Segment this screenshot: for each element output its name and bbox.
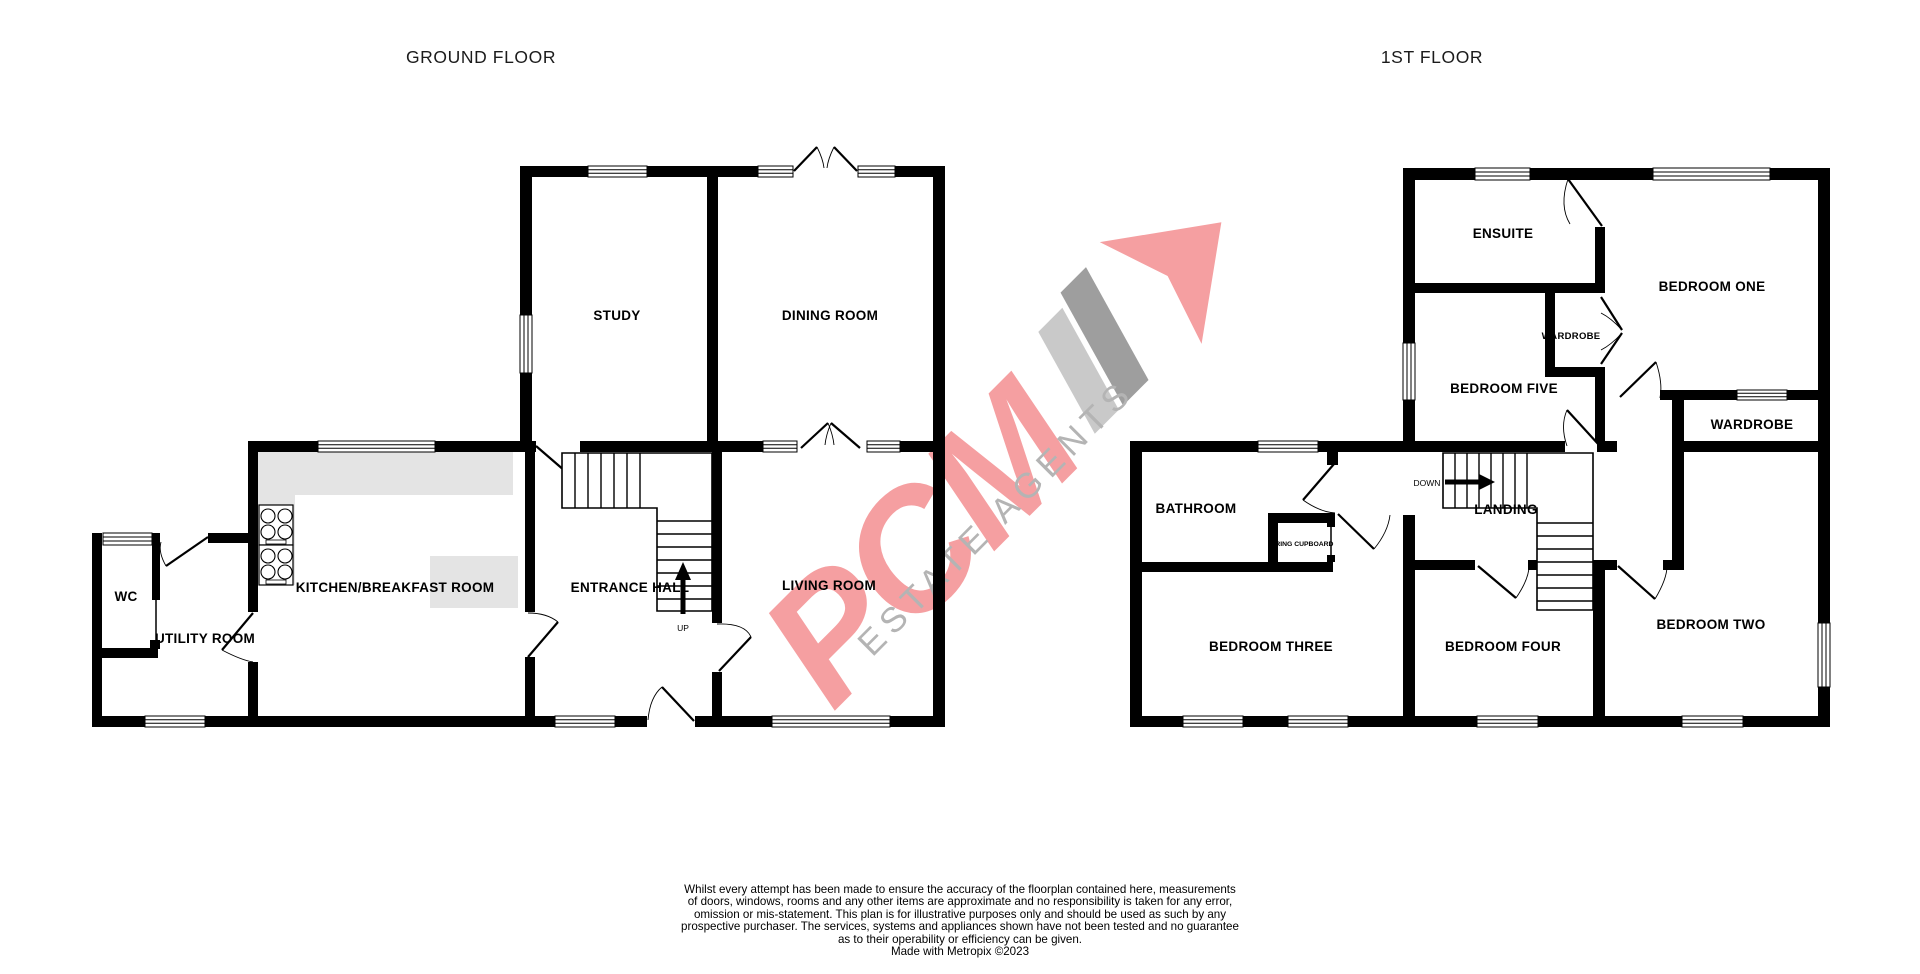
stairs-down-label: DOWN (1414, 478, 1441, 488)
watermark-brand-text: PCM (725, 345, 1118, 738)
watermark-arrow-icon (1100, 171, 1273, 344)
room-label-living: LIVING ROOM (782, 578, 876, 593)
disclaimer-credit: Made with Metropix ©2023 (0, 946, 1920, 958)
floorplan-page: GROUND FLOOR 1ST FLOOR PCM ESTATE AGENTS (0, 0, 1920, 974)
room-label-bedroom-three: BEDROOM THREE (1209, 639, 1333, 654)
room-label-bedroom-four: BEDROOM FOUR (1445, 639, 1561, 654)
room-label-landing: LANDING (1474, 502, 1538, 517)
floorplan-svg: PCM ESTATE AGENTS (0, 0, 1920, 974)
disclaimer-line: prospective purchaser. The services, sys… (0, 921, 1920, 933)
room-label-kitchen: KITCHEN/BREAKFAST ROOM (296, 580, 495, 595)
cooker-hob-icon (259, 505, 293, 585)
room-label-study: STUDY (593, 308, 640, 323)
room-label-bedroom-two: BEDROOM TWO (1656, 617, 1765, 632)
room-label-bathroom: BATHROOM (1156, 501, 1237, 516)
room-label-wc: WC (114, 589, 137, 604)
room-label-wardrobe-small: WARDROBE (1542, 331, 1601, 342)
room-label-ensuite: ENSUITE (1473, 226, 1534, 241)
first-floor-stairs (1443, 453, 1593, 610)
disclaimer-line: of doors, windows, rooms and any other i… (0, 896, 1920, 908)
room-label-airing-cupboard: AIRING CUPBOARD (1269, 541, 1334, 548)
room-label-wardrobe-right: WARDROBE (1711, 417, 1794, 432)
room-label-dining: DINING ROOM (782, 308, 878, 323)
room-label-utility: UTILITY ROOM (155, 631, 255, 646)
room-label-bedroom-one: BEDROOM ONE (1659, 279, 1766, 294)
disclaimer: Whilst every attempt has been made to en… (0, 884, 1920, 958)
room-label-entrance-hall: ENTRANCE HALL (571, 580, 690, 595)
first-floor-plan: ENSUITE BEDROOM ONE WARDROBE BEDROOM FIV… (1130, 168, 1830, 727)
stairs-up-label: UP (677, 623, 689, 633)
room-label-bedroom-five: BEDROOM FIVE (1450, 381, 1558, 396)
